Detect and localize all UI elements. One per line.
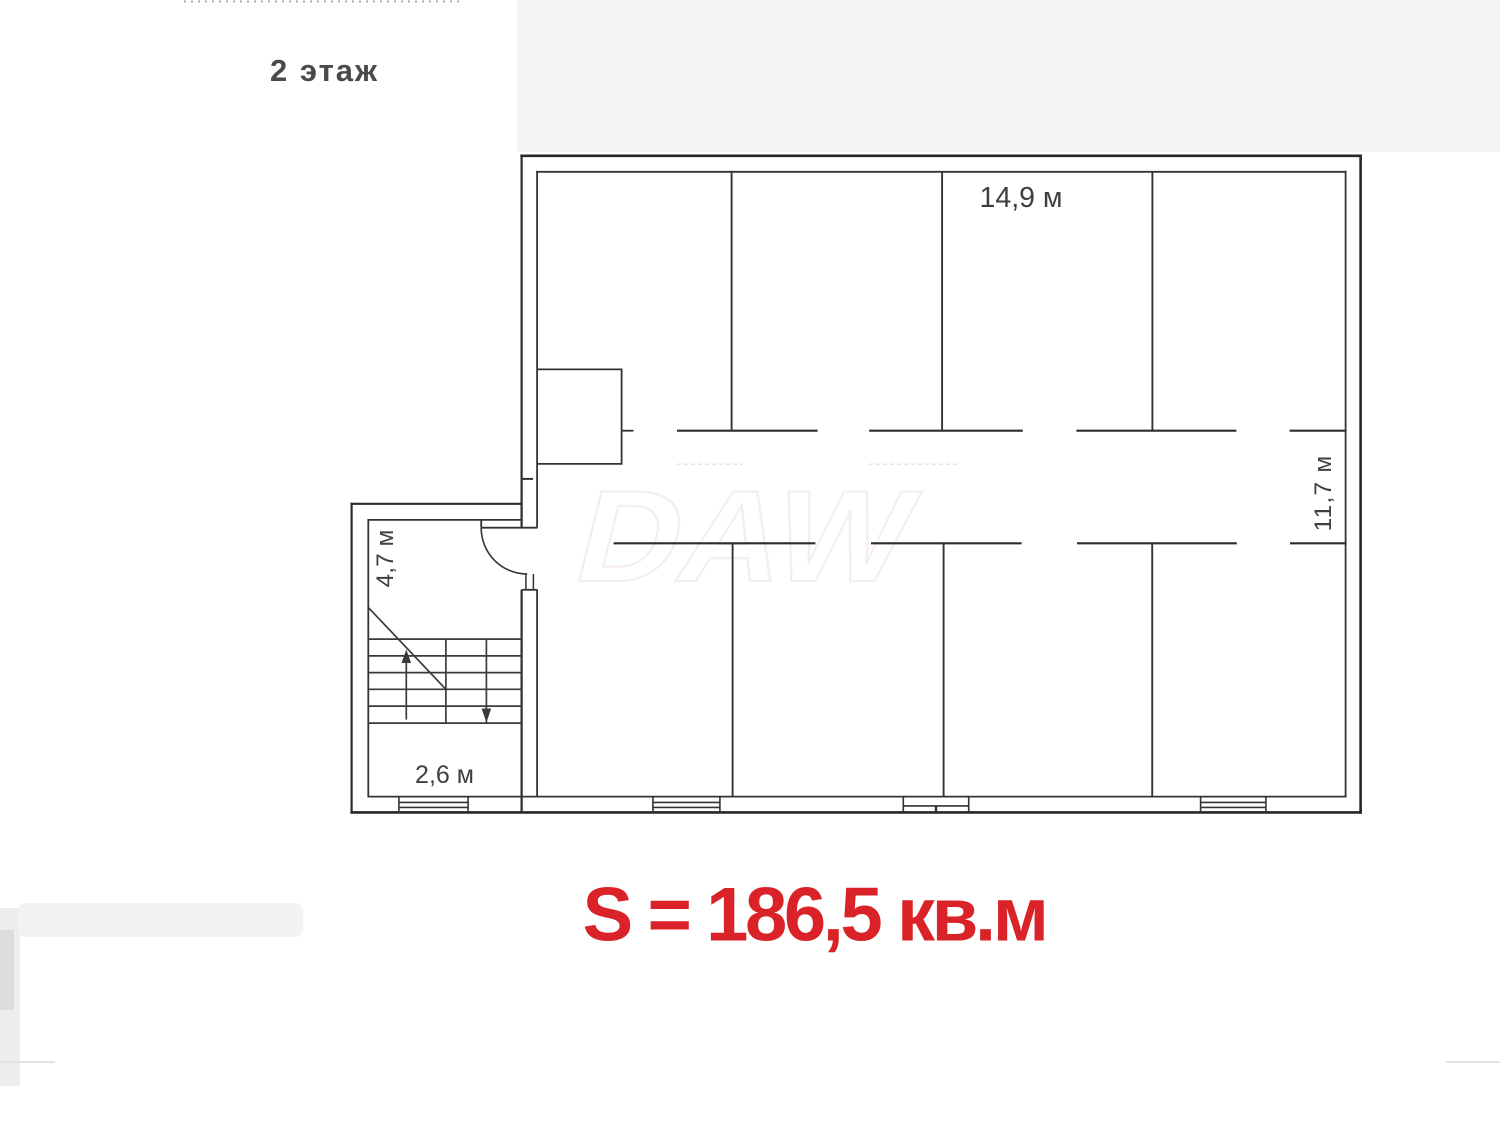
svg-text:4,7 м: 4,7 м: [372, 530, 399, 588]
svg-text:14,9 м: 14,9 м: [980, 182, 1063, 214]
svg-text:DAW: DAW: [563, 463, 930, 609]
svg-text:2 этаж: 2 этаж: [270, 53, 379, 88]
svg-text:S = 186,5 кв.м: S = 186,5 кв.м: [582, 872, 1045, 957]
svg-text:2,6 м: 2,6 м: [415, 761, 474, 789]
svg-text:11,7 м: 11,7 м: [1310, 455, 1337, 532]
